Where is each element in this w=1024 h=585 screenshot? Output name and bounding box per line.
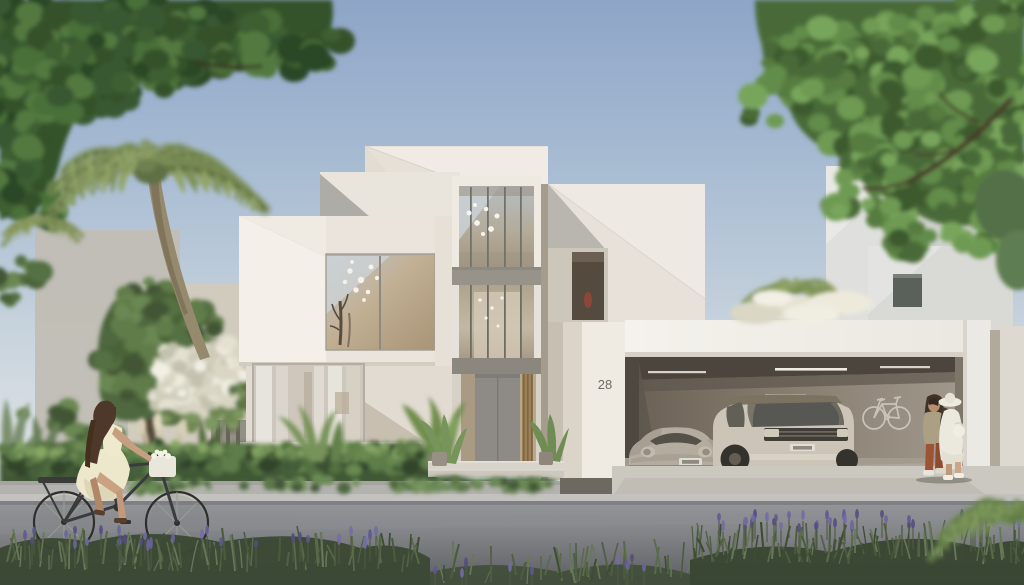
svg-text:28: 28 (598, 377, 612, 392)
